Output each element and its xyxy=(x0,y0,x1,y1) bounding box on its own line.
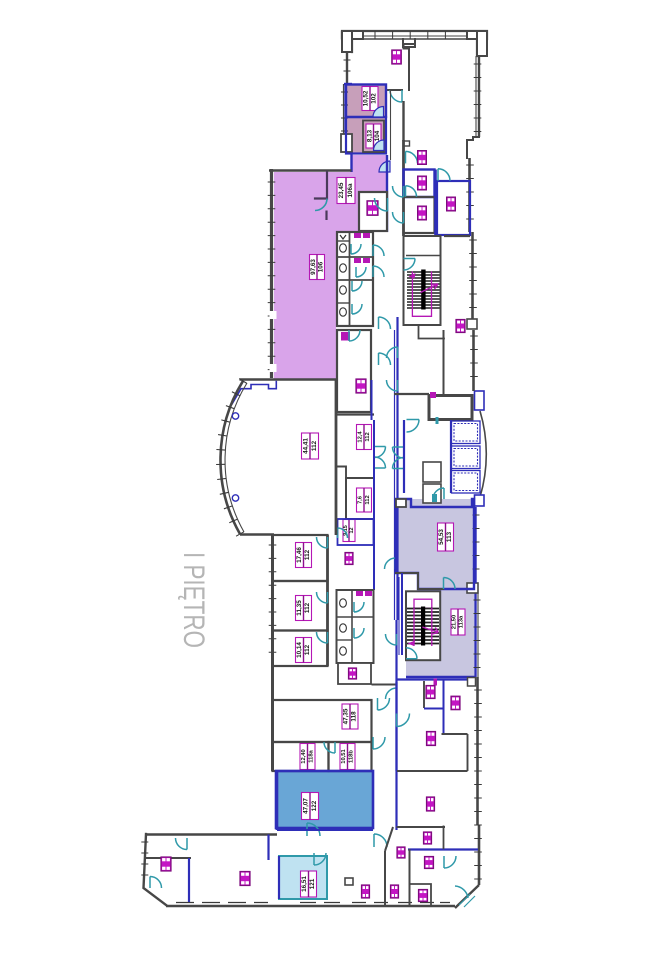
svg-text:47,35: 47,35 xyxy=(343,708,350,724)
svg-text:118: 118 xyxy=(351,711,358,722)
svg-text:10,51: 10,51 xyxy=(341,748,347,763)
svg-text:118a: 118a xyxy=(308,749,314,762)
svg-text:10,52: 10,52 xyxy=(363,90,370,106)
svg-text:10,14: 10,14 xyxy=(296,642,303,658)
svg-text:113a: 113a xyxy=(459,615,465,628)
svg-text:121: 121 xyxy=(309,878,316,889)
svg-text:47,07: 47,07 xyxy=(302,798,309,814)
svg-text:12,4: 12,4 xyxy=(357,431,363,443)
svg-text:122: 122 xyxy=(311,800,318,811)
svg-text:54,53: 54,53 xyxy=(438,529,445,545)
svg-text:I PIĘTRO: I PIĘTRO xyxy=(177,552,210,648)
svg-text:16,51: 16,51 xyxy=(301,876,308,892)
svg-text:102: 102 xyxy=(371,93,378,104)
svg-text:106a: 106a xyxy=(347,183,354,198)
svg-text:44,41: 44,41 xyxy=(302,438,309,454)
svg-text:11,35: 11,35 xyxy=(296,600,303,616)
svg-text:8,13: 8,13 xyxy=(366,129,373,142)
svg-text:23,45: 23,45 xyxy=(338,182,345,198)
svg-text:112: 112 xyxy=(311,440,318,451)
svg-text:118b: 118b xyxy=(348,750,354,763)
svg-text:21,50: 21,50 xyxy=(452,615,458,630)
svg-text:106: 106 xyxy=(317,261,324,272)
svg-text:112: 112 xyxy=(365,495,371,504)
svg-text:7,6: 7,6 xyxy=(357,495,363,504)
svg-text:112: 112 xyxy=(304,549,311,560)
svg-text:113: 113 xyxy=(446,531,453,542)
svg-text:112: 112 xyxy=(304,602,311,613)
svg-text:112: 112 xyxy=(304,644,311,655)
svg-text:12,40: 12,40 xyxy=(301,749,307,764)
svg-text:12: 12 xyxy=(349,528,355,534)
svg-text:112: 112 xyxy=(365,432,371,441)
svg-text:97,63: 97,63 xyxy=(310,259,317,275)
svg-text:17,46: 17,46 xyxy=(296,547,303,563)
svg-text:104: 104 xyxy=(374,130,381,141)
